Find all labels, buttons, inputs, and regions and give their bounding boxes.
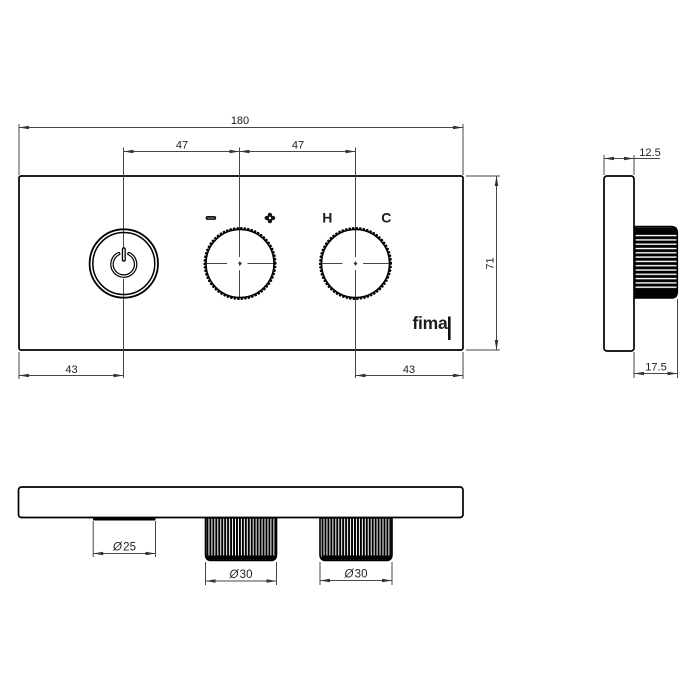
svg-text:Ø25: Ø25 xyxy=(112,542,136,554)
svg-text:fima: fima xyxy=(412,313,448,333)
svg-text:H: H xyxy=(322,210,332,226)
svg-text:Ø30: Ø30 xyxy=(229,569,253,581)
svg-text:43: 43 xyxy=(65,364,77,376)
svg-text:71: 71 xyxy=(485,257,497,269)
svg-text:47: 47 xyxy=(292,140,304,152)
svg-text:12.5: 12.5 xyxy=(639,147,660,159)
svg-text:43: 43 xyxy=(403,364,415,376)
svg-text:47: 47 xyxy=(176,140,188,152)
svg-text:Ø30: Ø30 xyxy=(344,569,368,581)
svg-text:C: C xyxy=(381,210,391,226)
svg-text:17.5: 17.5 xyxy=(645,362,666,374)
svg-text:180: 180 xyxy=(231,115,249,127)
